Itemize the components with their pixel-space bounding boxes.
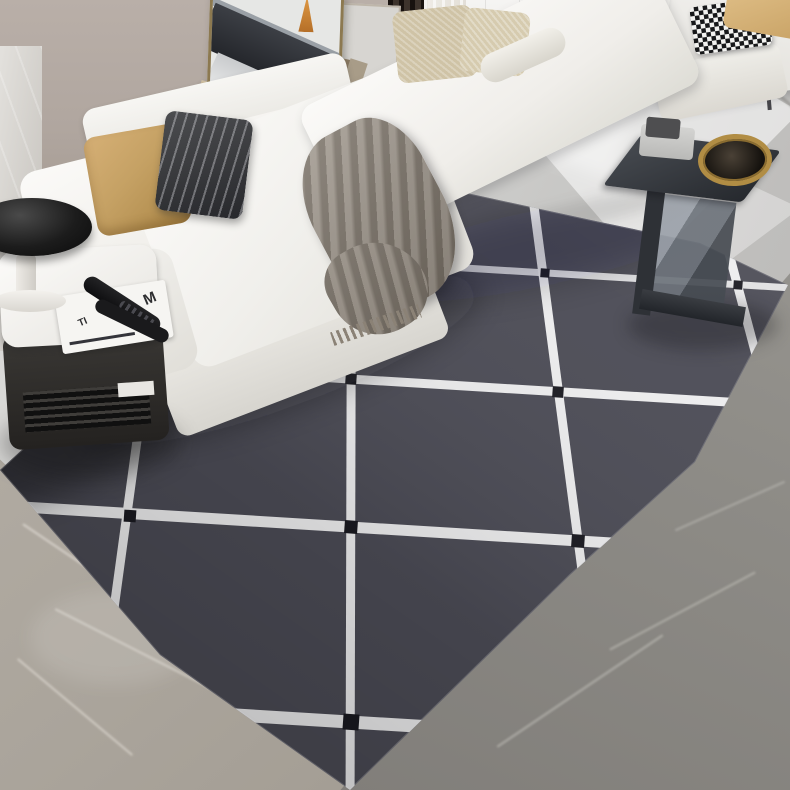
shelf-books [118, 381, 155, 397]
magazine-letter: M [141, 288, 159, 309]
coaster-stack-top [645, 117, 681, 140]
living-room-photo: M O TI [0, 0, 790, 790]
magazine-letter: TI [77, 316, 89, 330]
graphic-print-pillow [154, 110, 254, 220]
artwork-eiffel-tower [296, 0, 317, 32]
